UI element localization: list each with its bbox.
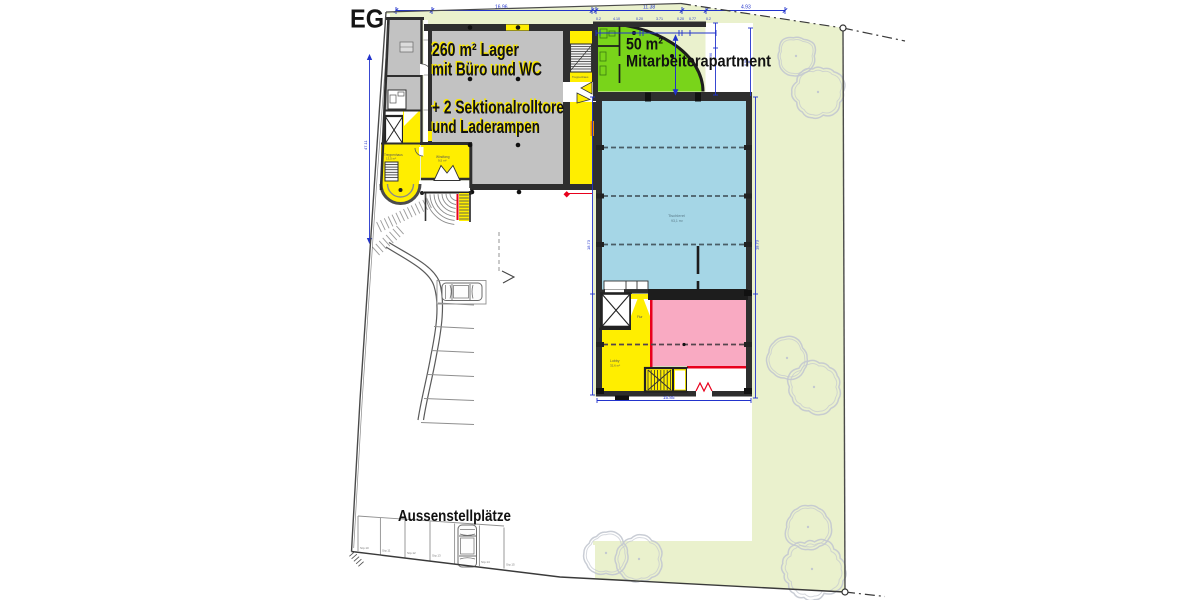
svg-text:Stp.13: Stp.13 xyxy=(432,554,441,558)
svg-text:11.38: 11.38 xyxy=(643,5,655,11)
svg-text:93,1 m²: 93,1 m² xyxy=(671,219,684,223)
svg-text:4.10: 4.10 xyxy=(613,17,620,21)
svg-text:Stp.14: Stp.14 xyxy=(481,560,490,564)
svg-text:Stp.11: Stp.11 xyxy=(382,549,391,553)
svg-text:+ 2 Sektionalrolltore: + 2 Sektionalrolltore xyxy=(432,98,564,118)
svg-text:0.77: 0.77 xyxy=(689,17,696,21)
svg-text:47.11: 47.11 xyxy=(363,140,368,150)
svg-text:3.71: 3.71 xyxy=(656,17,663,21)
svg-text:16.96: 16.96 xyxy=(495,5,508,11)
svg-text:0.2: 0.2 xyxy=(596,17,601,21)
svg-text:0.20: 0.20 xyxy=(636,17,643,21)
svg-text:Stp.12: Stp.12 xyxy=(407,551,416,555)
svg-text:EG: EG xyxy=(350,4,384,34)
svg-text:13,5 m²: 13,5 m² xyxy=(386,157,396,161)
svg-text:32,6 m²: 32,6 m² xyxy=(610,364,620,368)
svg-text:Aussenstellplätze: Aussenstellplätze xyxy=(398,508,511,525)
svg-text:Flur: Flur xyxy=(637,315,643,319)
svg-text:260 m² Lager: 260 m² Lager xyxy=(432,40,519,60)
svg-text:Stp.15: Stp.15 xyxy=(506,563,515,567)
svg-text:mit Büro und WC: mit Büro und WC xyxy=(432,60,542,80)
svg-text:9,5 m²: 9,5 m² xyxy=(438,159,447,163)
svg-text:Tischlerei: Tischlerei xyxy=(668,213,685,218)
svg-text:18.73: 18.73 xyxy=(586,239,591,250)
svg-text:Lobby: Lobby xyxy=(610,359,620,363)
svg-text:0.2: 0.2 xyxy=(706,17,711,21)
svg-text:Treppenhaus: Treppenhaus xyxy=(572,75,589,79)
svg-text:15.85: 15.85 xyxy=(663,395,675,400)
svg-text:18.73: 18.73 xyxy=(755,239,760,250)
svg-text:Stp.10: Stp.10 xyxy=(360,546,369,550)
svg-text:und Laderampen: und Laderampen xyxy=(432,117,540,137)
svg-text:4.93: 4.93 xyxy=(741,5,751,11)
svg-text:0.20: 0.20 xyxy=(677,17,684,21)
svg-text:Mitarbeiterapartment: Mitarbeiterapartment xyxy=(626,52,771,71)
